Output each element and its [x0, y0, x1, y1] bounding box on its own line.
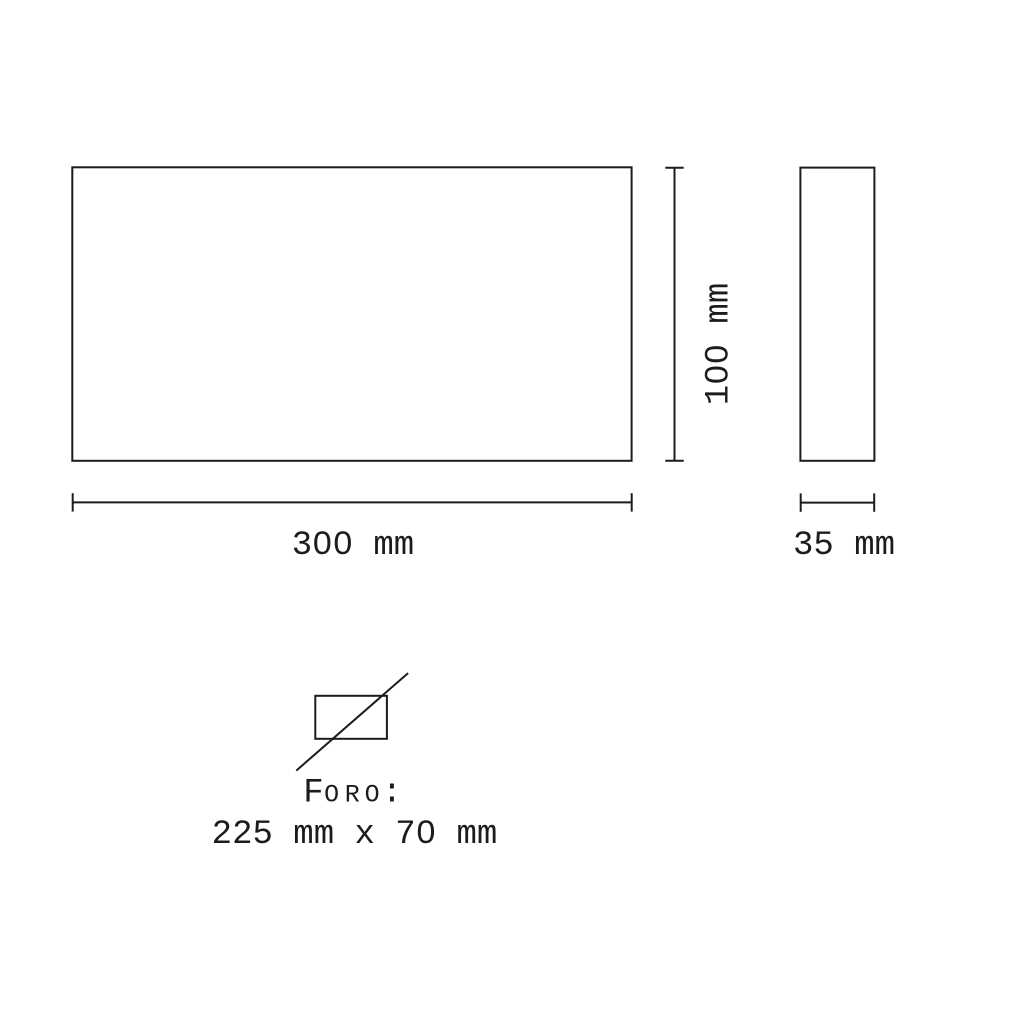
svg-text:R: R — [345, 781, 360, 810]
svg-text:300 mm: 300 mm — [292, 527, 414, 565]
svg-text:35 mm: 35 mm — [793, 527, 895, 565]
svg-text:O: O — [324, 781, 339, 810]
svg-text::: : — [382, 775, 402, 813]
svg-text:225 mm x 70 mm: 225 mm x 70 mm — [212, 816, 498, 854]
svg-text:O: O — [365, 781, 380, 810]
svg-text:100 mm: 100 mm — [701, 283, 739, 405]
svg-text:F: F — [303, 775, 323, 813]
